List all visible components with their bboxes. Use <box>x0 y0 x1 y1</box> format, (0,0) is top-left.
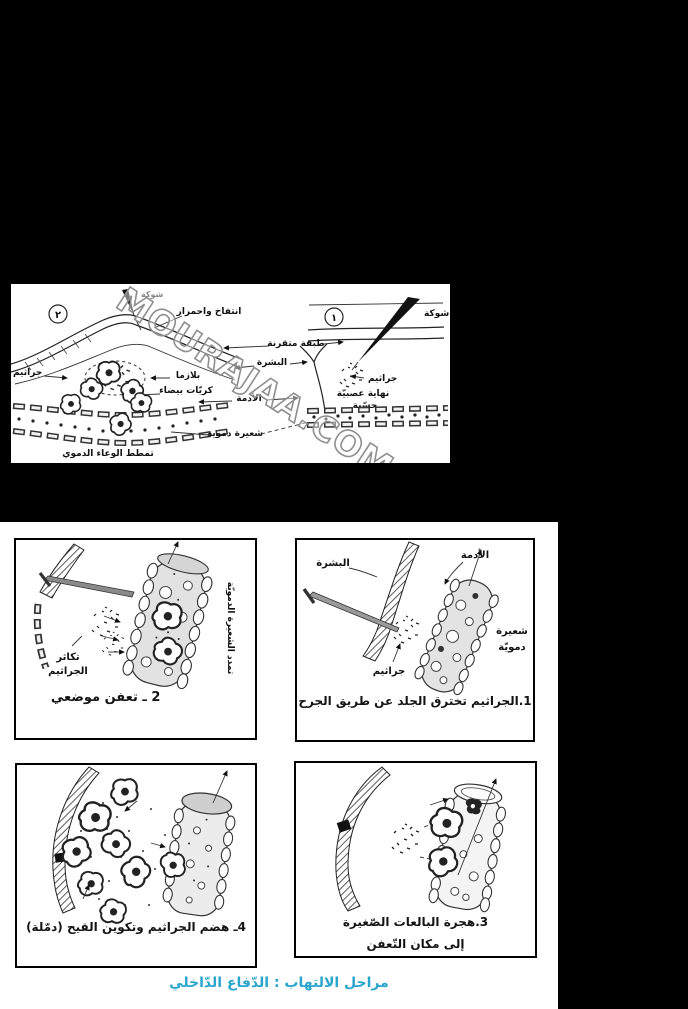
stage4-sketch-panel <box>17 765 255 966</box>
capillary-label2-f1: دمويّة <box>498 642 525 653</box>
stage3-frame: 3.هجرة البالعات الصّغيرة إلى مكان التّعف… <box>294 761 537 958</box>
stage3-caption-line2: إلى مكان التّعفن <box>296 933 535 955</box>
vessel-dilation-label: تمطط الوعاء الدموي <box>62 449 153 459</box>
germs-label-left: جراثيم <box>13 368 42 378</box>
epidermis-band <box>363 542 419 661</box>
growth-label-2: الجراثيم <box>48 666 88 677</box>
stage4-frame: 4ـ هضم الجراثيم وتكوين القيح (دمّلة) <box>15 763 257 968</box>
skin-band <box>40 544 84 598</box>
capillary-cylinder-f2 <box>121 548 217 692</box>
white-cells-label: كريّات بيضاء <box>159 386 213 396</box>
inflammation-overview-sketch: ١ شوكة جراثيم نهاية عصبيّة حسّية <box>11 284 450 463</box>
skin-band <box>336 767 390 911</box>
dilated-vessel <box>13 390 231 443</box>
stage2-caption: 2 ـ تعفن موضعي <box>16 690 195 705</box>
stage3-caption-line1: 3.هجرة البالعات الصّغيرة <box>296 911 535 933</box>
dermis-label-f1: الأدمة <box>461 548 489 561</box>
capillary-dilation-label: تمدد الشعيرة الدمويّة <box>225 582 235 675</box>
top-diagram-panel: ١ شوكة جراثيم نهاية عصبيّة حسّية <box>10 283 451 464</box>
capillary-label-top: شعيرة دموية <box>207 429 263 439</box>
growth-label-1: تكاثر <box>55 652 80 663</box>
nerve-label-1: نهاية عصبيّة <box>337 389 390 399</box>
capillary-cylinder-f4 <box>153 788 239 918</box>
stage1-frame: الأدمة البشرة جراثيم <box>295 538 535 742</box>
stage2-sketch-panel: تكاثر الجراثيم تمدد الشعيرة الدمويّة <box>16 540 255 738</box>
germs-label-f1: جراثيم <box>373 666 406 677</box>
epidermis-label-f1: البشرة <box>316 558 350 569</box>
stages-sheet: الأدمة البشرة جراثيم <box>0 522 558 1009</box>
stage1-caption: 1.الجراثيم تخترق الجلد عن طريق الجرح <box>297 694 533 708</box>
thorn-label: شوكة <box>424 309 449 319</box>
stage3-caption: 3.هجرة البالعات الصّغيرة إلى مكان التّعف… <box>296 911 535 955</box>
stage2-frame: تكاثر الجراثيم تمدد الشعيرة الدمويّة 2 ـ… <box>14 538 257 740</box>
thorn-shape <box>358 297 420 362</box>
stage1-sketch-panel: الأدمة البشرة جراثيم <box>297 540 533 740</box>
capillary-cylinder-f3 <box>414 777 510 913</box>
capillary-label1-f1: شعيرة <box>496 626 528 637</box>
sheet-title: مراحل الالتهاب : الدّفاع الدّاخلي <box>0 975 558 991</box>
stage2-number: ٢ <box>55 310 61 321</box>
keratin-layer-label: طبقة متقرنة <box>267 339 324 349</box>
scanned-worksheet-page: { "colors": { "background": "#000000", "… <box>0 0 688 1009</box>
stage1-number: ١ <box>331 313 337 324</box>
germs-label-right: جراثيم <box>368 374 397 384</box>
stage4-caption: 4ـ هضم الجراثيم وتكوين القيح (دمّلة) <box>17 920 255 934</box>
capillary-cylinder-f1 <box>412 573 502 699</box>
plasma-label: بلازما <box>176 371 200 381</box>
